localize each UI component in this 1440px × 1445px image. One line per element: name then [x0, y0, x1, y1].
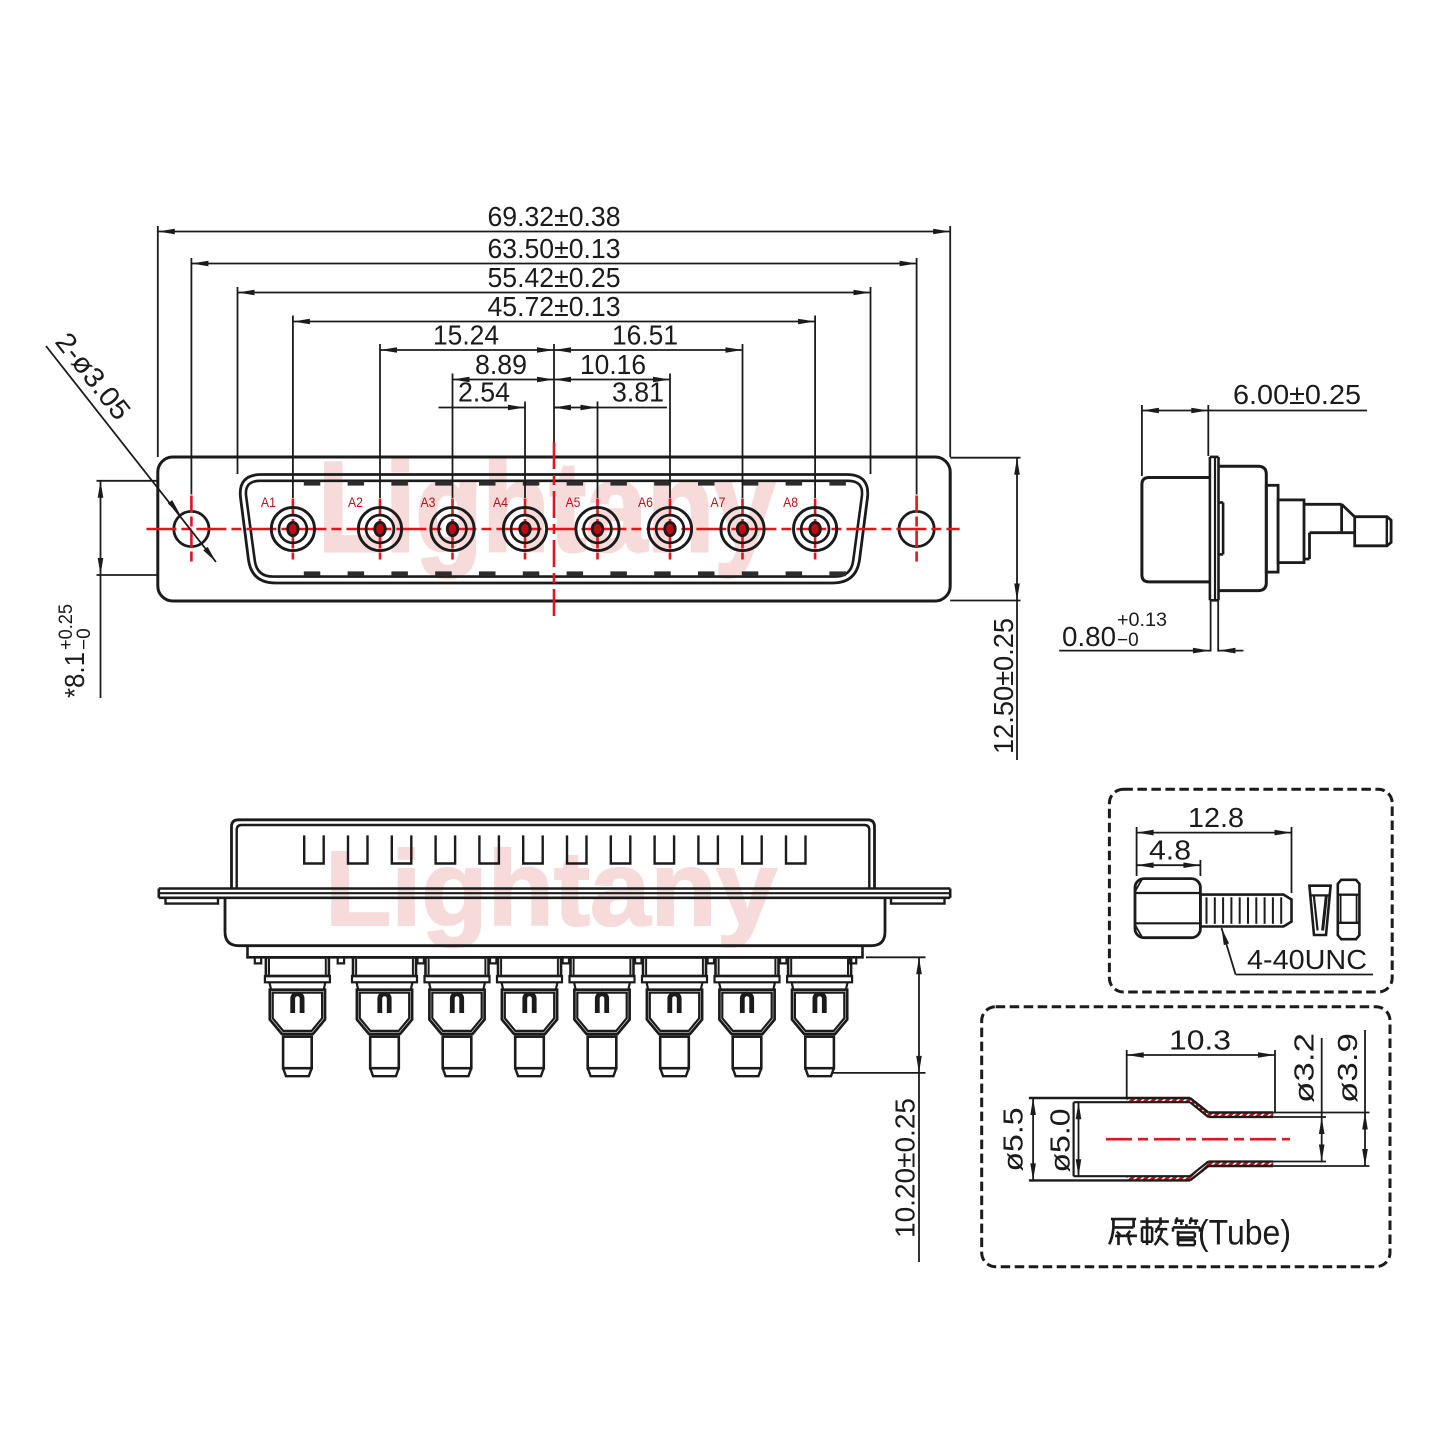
svg-text:45.72±0.13: 45.72±0.13	[488, 291, 621, 322]
svg-text:3.81: 3.81	[612, 377, 664, 408]
svg-text:A8: A8	[783, 494, 798, 510]
svg-text:4-40UNC: 4-40UNC	[1247, 944, 1367, 975]
svg-text:15.24: 15.24	[433, 320, 499, 351]
svg-text:63.50±0.13: 63.50±0.13	[488, 233, 621, 264]
svg-text:A2: A2	[348, 494, 363, 510]
svg-text:10.16: 10.16	[580, 349, 646, 380]
svg-text:−0: −0	[74, 628, 95, 650]
svg-text:55.42±0.25: 55.42±0.25	[488, 262, 621, 293]
svg-text:A7: A7	[711, 494, 726, 510]
svg-text:ø3.9: ø3.9	[1332, 1033, 1363, 1103]
svg-text:12.8: 12.8	[1188, 802, 1244, 833]
svg-text:12.50±0.25: 12.50±0.25	[988, 618, 1019, 754]
svg-text:6.00±0.25: 6.00±0.25	[1233, 379, 1361, 410]
svg-text:10.3: 10.3	[1169, 1025, 1231, 1056]
svg-text:A3: A3	[421, 494, 436, 510]
svg-text:A6: A6	[638, 494, 653, 510]
svg-text:4.8: 4.8	[1149, 835, 1191, 866]
svg-text:(Tube): (Tube)	[1198, 1214, 1291, 1253]
svg-text:ø5.5: ø5.5	[998, 1108, 1029, 1172]
svg-text:0.80: 0.80	[1062, 621, 1116, 652]
svg-text:69.32±0.38: 69.32±0.38	[488, 201, 621, 232]
svg-text:A4: A4	[493, 494, 508, 510]
svg-text:2.54: 2.54	[458, 377, 510, 408]
svg-text:+0.13: +0.13	[1117, 610, 1167, 631]
svg-text:16.51: 16.51	[612, 320, 678, 351]
svg-text:10.20±0.25: 10.20±0.25	[890, 1098, 921, 1238]
svg-text:ø5.0: ø5.0	[1045, 1109, 1076, 1173]
svg-text:−0: −0	[1117, 630, 1139, 651]
svg-text:A1: A1	[261, 494, 276, 510]
svg-text:A5: A5	[566, 494, 581, 510]
svg-text:*8.1: *8.1	[59, 652, 90, 698]
svg-text:8.89: 8.89	[475, 349, 527, 380]
svg-text:ø3.2: ø3.2	[1289, 1033, 1320, 1103]
